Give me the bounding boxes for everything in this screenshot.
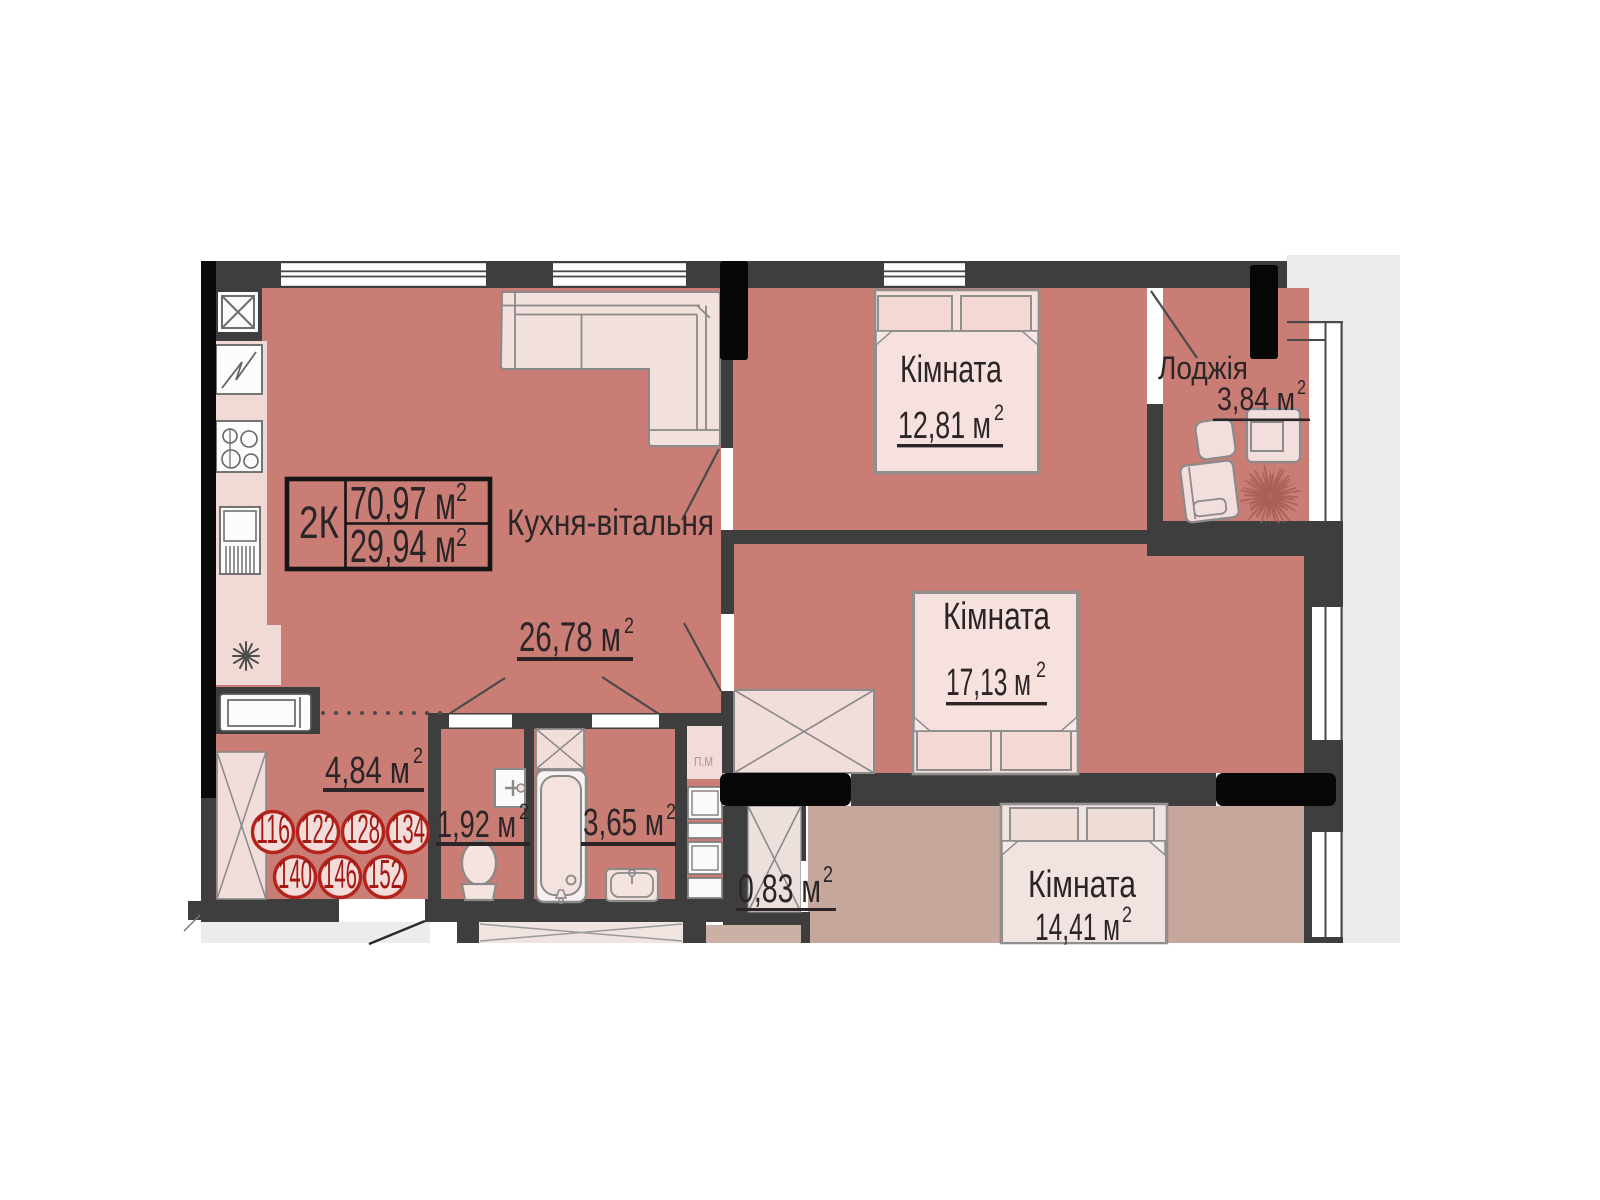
svg-text:12,81 м: 12,81 м <box>898 405 991 447</box>
svg-text:2: 2 <box>666 799 676 824</box>
svg-text:Кімната: Кімната <box>1028 864 1137 906</box>
svg-text:2: 2 <box>519 799 529 824</box>
svg-text:152: 152 <box>368 851 402 897</box>
svg-text:29,94 м: 29,94 м <box>350 520 456 572</box>
svg-text:П.М: П.М <box>694 754 713 769</box>
svg-text:2: 2 <box>1036 657 1046 682</box>
svg-text:122: 122 <box>301 806 335 852</box>
svg-text:Кімната: Кімната <box>900 349 1003 391</box>
svg-text:116: 116 <box>256 806 290 852</box>
svg-text:2К: 2К <box>299 497 339 548</box>
svg-text:0,83 м: 0,83 м <box>738 867 821 911</box>
svg-text:Кухня-вітальня: Кухня-вітальня <box>507 502 714 543</box>
svg-text:1,92 м: 1,92 м <box>437 804 516 846</box>
svg-text:128: 128 <box>346 806 380 852</box>
svg-text:3,65 м: 3,65 м <box>583 802 664 844</box>
svg-text:2: 2 <box>456 522 467 552</box>
svg-text:134: 134 <box>391 806 425 852</box>
svg-text:2: 2 <box>624 613 634 638</box>
svg-text:17,13 м: 17,13 м <box>946 662 1031 704</box>
svg-text:2: 2 <box>456 477 467 507</box>
svg-text:Кімната: Кімната <box>943 596 1051 638</box>
svg-text:26,78 м: 26,78 м <box>519 613 621 660</box>
svg-text:140: 140 <box>278 851 312 897</box>
svg-text:14,41 м: 14,41 м <box>1035 907 1120 949</box>
svg-text:2: 2 <box>1297 377 1306 399</box>
svg-text:146: 146 <box>323 851 357 897</box>
svg-text:2: 2 <box>1122 902 1132 927</box>
svg-text:2: 2 <box>823 861 833 887</box>
svg-text:2: 2 <box>994 400 1004 425</box>
svg-text:2: 2 <box>413 743 423 768</box>
svg-text:4,84 м: 4,84 м <box>325 750 410 792</box>
svg-text:3,84 м: 3,84 м <box>1217 381 1295 417</box>
